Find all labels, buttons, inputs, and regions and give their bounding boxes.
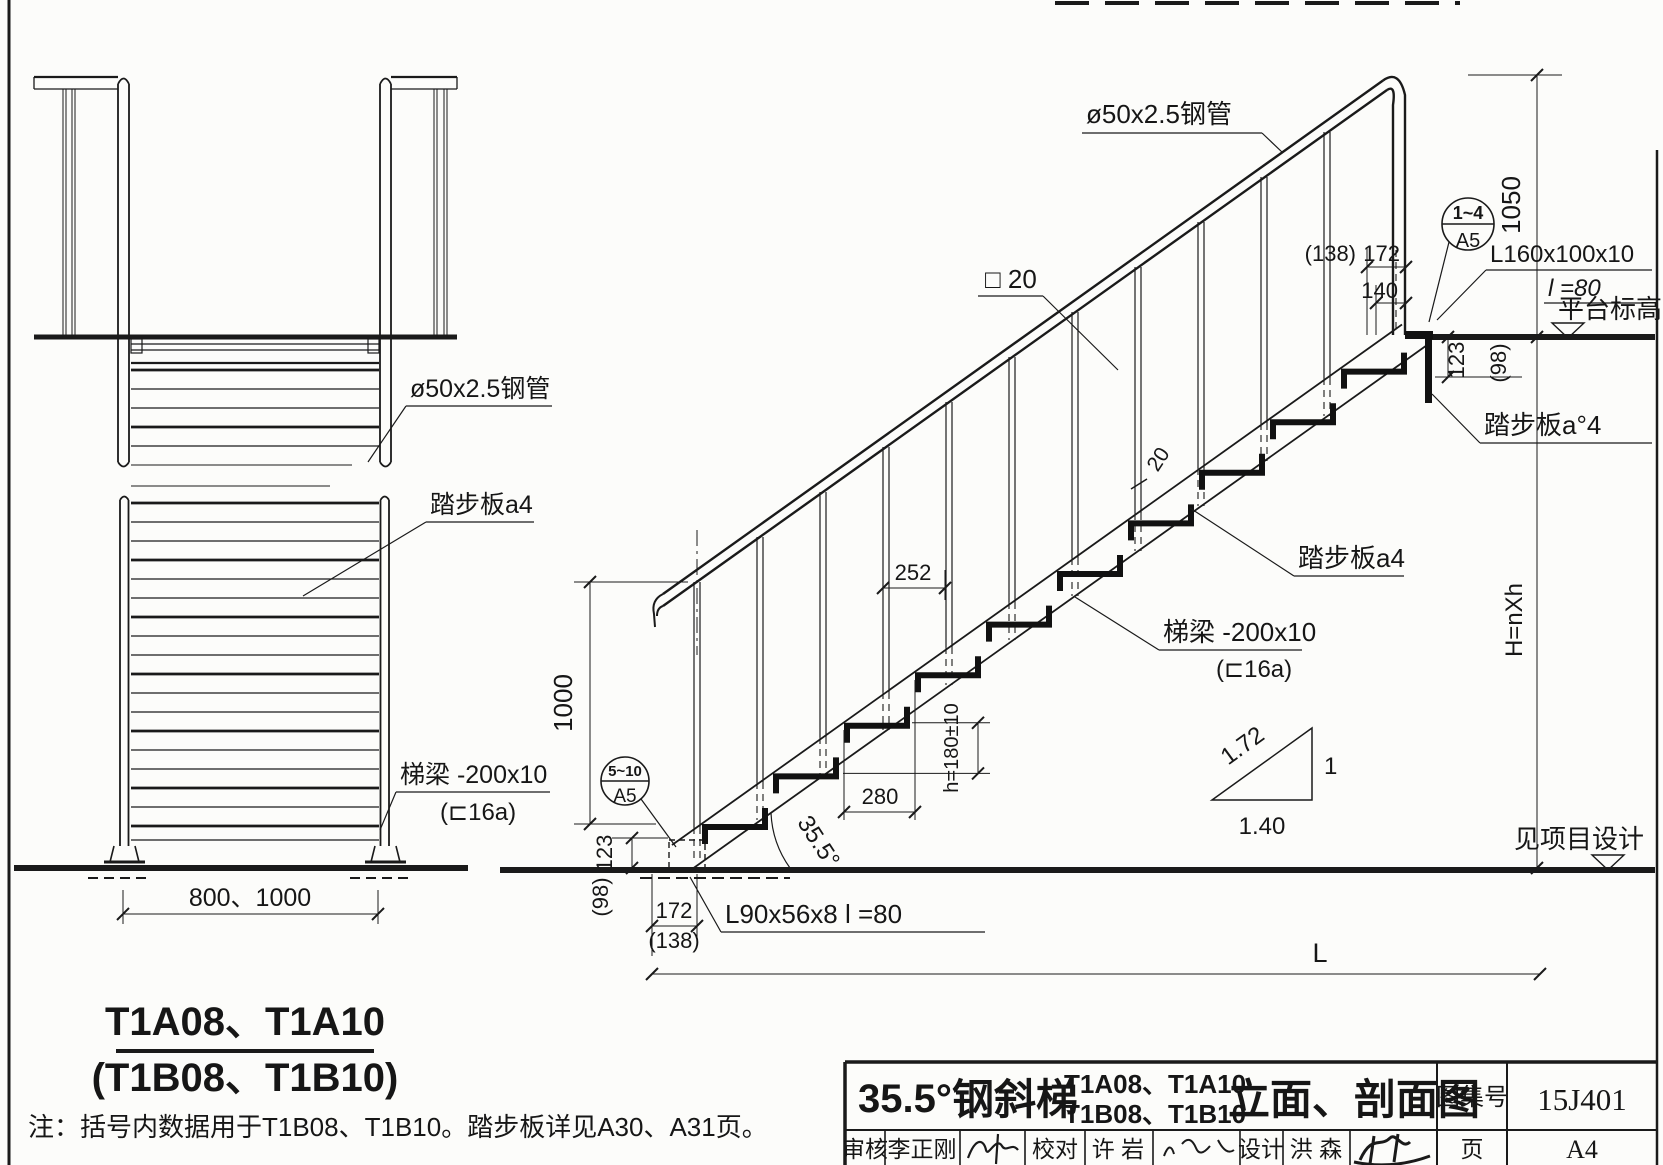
front-label-tread: 踏步板a4 [303, 491, 534, 596]
front-view-title-1: T1A08、T1A10 [105, 1000, 385, 1044]
section-landing-angle [1405, 331, 1433, 339]
checker-label: 校对 [1032, 1136, 1078, 1162]
detail-bottom-range-text: 5~10 [608, 763, 642, 780]
detail-marker-top: 1~4 A5 [1429, 198, 1494, 322]
section-label-mid-tread: 踏步板a4 [1190, 508, 1405, 576]
reviewer-name: 李正刚 [888, 1136, 957, 1162]
front-width-dim-text: 800、1000 [189, 884, 311, 912]
title-block: 35.5° 钢斜梯 T1A08、T1A10 T1B08、T1B10 立面、剖面图… [842, 1062, 1657, 1165]
sheet-note: 注：括号内数据用于T1B08、T1B10。踏步板详见A30、A31页。 [28, 1112, 768, 1142]
title-angle-text: 35.5° [858, 1077, 952, 1121]
dim-1050: 1050 [1496, 176, 1526, 234]
dim-98-bottom: (98) [588, 877, 613, 916]
section-handrail [653, 77, 1405, 627]
atlas-number-value: 15J401 [1537, 1082, 1627, 1117]
front-view-title-2: (T1B08、T1B10) [92, 1056, 399, 1100]
atlas-number-label: 图集号 [1436, 1084, 1508, 1111]
title-product-text: 钢斜梯 [952, 1076, 1078, 1123]
dim-123-bottom: 123 [592, 835, 617, 872]
drawing-sheet: 800、1000 ø50x2.5钢管 踏步板a4 梯梁 -200x10 (⊏16… [0, 0, 1663, 1165]
section-stringer [640, 325, 1428, 879]
section-label-bottom-angle: L90x56x8 l =80 [690, 877, 985, 932]
section-top-angle-label-text: L160x100x10 [1490, 241, 1634, 268]
dim-138-bottom: (138) [648, 928, 699, 953]
section-label-handrail: ø50x2.5钢管 [1082, 99, 1283, 153]
detail-bottom-sheet-text: A5 [613, 786, 636, 807]
dim-140-top: 140 [1361, 278, 1398, 303]
designer-name: 洪 森 [1290, 1136, 1342, 1162]
section-stringer-label-text2: (⊏16a) [1216, 656, 1292, 683]
dim-252: 252 [895, 560, 932, 585]
dim-280: 280 [862, 784, 899, 809]
detail-marker-bottom: 5~10 A5 [601, 757, 676, 847]
page-borders [9, 0, 1657, 1165]
designer-label: 设计 [1238, 1136, 1284, 1162]
detail-top-sheet-text: A5 [1456, 230, 1480, 252]
page-label: 页 [1461, 1136, 1484, 1162]
section-platform-label-text: 平台标高 [1558, 294, 1662, 324]
title-models2-text: T1B08、T1B10 [1064, 1099, 1246, 1129]
section-handrail-label-text: ø50x2.5钢管 [1086, 99, 1232, 129]
title-models1-text: T1A08、T1A10 [1064, 1069, 1246, 1099]
section-label-see-project: 见项目设计 [1514, 824, 1644, 870]
section-bottom-angle-label-text: L90x56x8 l =80 [725, 899, 902, 929]
front-handrail-label-text: ø50x2.5钢管 [410, 375, 550, 403]
front-stringer-label-text2: (⊏16a) [440, 799, 516, 826]
front-rungs [131, 370, 379, 840]
front-platform-rails [34, 77, 457, 336]
dim-98-top: (98) [1486, 343, 1511, 382]
section-mid-tread-label-text: 踏步板a4 [1298, 543, 1405, 573]
dim-138-top: (138) [1305, 241, 1356, 266]
designer-signature-icon [1354, 1134, 1430, 1165]
front-label-stringer: 梯梁 -200x10 (⊏16a) [380, 761, 550, 830]
reviewer-label: 审核 [842, 1136, 888, 1162]
dim-1000: 1000 [548, 674, 578, 732]
slope-triangle: 1.72 1 1.40 [1212, 721, 1337, 840]
section-label-platform-level: 平台标高 [1552, 294, 1662, 338]
front-width-dimension: 800、1000 [117, 884, 384, 924]
front-stringer-label-text: 梯梁 -200x10 [400, 761, 547, 789]
dim-H: H=nXh [1501, 583, 1528, 657]
front-feet [88, 846, 414, 878]
dim-172-top: 172 [1363, 241, 1400, 266]
page-number: A4 [1566, 1135, 1598, 1164]
dim-angle: 35.5° [792, 811, 845, 873]
front-platform-deck [34, 337, 457, 363]
slope-v-text: 1 [1324, 753, 1337, 780]
section-square-bar-label-text: □ 20 [985, 264, 1037, 294]
front-label-handrail: ø50x2.5钢管 [368, 375, 552, 462]
dim-123-top: 123 [1444, 342, 1469, 379]
section-see-project-text: 见项目设计 [1514, 824, 1644, 854]
front-view: 800、1000 ø50x2.5钢管 踏步板a4 梯梁 -200x10 (⊏16… [14, 77, 768, 1142]
reviewer-signature-icon [968, 1134, 1018, 1164]
section-label-stringer: 梯梁 -200x10 (⊏16a) [1075, 597, 1316, 683]
front-tread-label-text: 踏步板a4 [430, 491, 533, 519]
dim-square-bar: 20 [1143, 443, 1175, 475]
section-view: 1050 H=nXh 1000 123 (98) 172 (138) L 252 [500, 69, 1662, 980]
section-stringer-label-text: 梯梁 -200x10 [1163, 617, 1316, 647]
slope-hyp-text: 1.72 [1216, 721, 1270, 770]
dim-step-height: h=180±10 [941, 703, 963, 792]
checker-name: 许 岩 [1092, 1136, 1144, 1162]
section-top-tread-label-text: 踏步板a°4 [1484, 410, 1601, 440]
drawing-canvas: 800、1000 ø50x2.5钢管 踏步板a4 梯梁 -200x10 (⊏16… [0, 0, 1663, 1165]
dim-L: L [1312, 938, 1327, 968]
checker-signature-icon [1164, 1140, 1234, 1156]
detail-top-range-text: 1~4 [1453, 203, 1484, 223]
dim-172-bottom: 172 [656, 898, 693, 923]
slope-h-text: 1.40 [1239, 813, 1286, 840]
section-label-top-tread: 踏步板a°4 [1432, 394, 1652, 443]
